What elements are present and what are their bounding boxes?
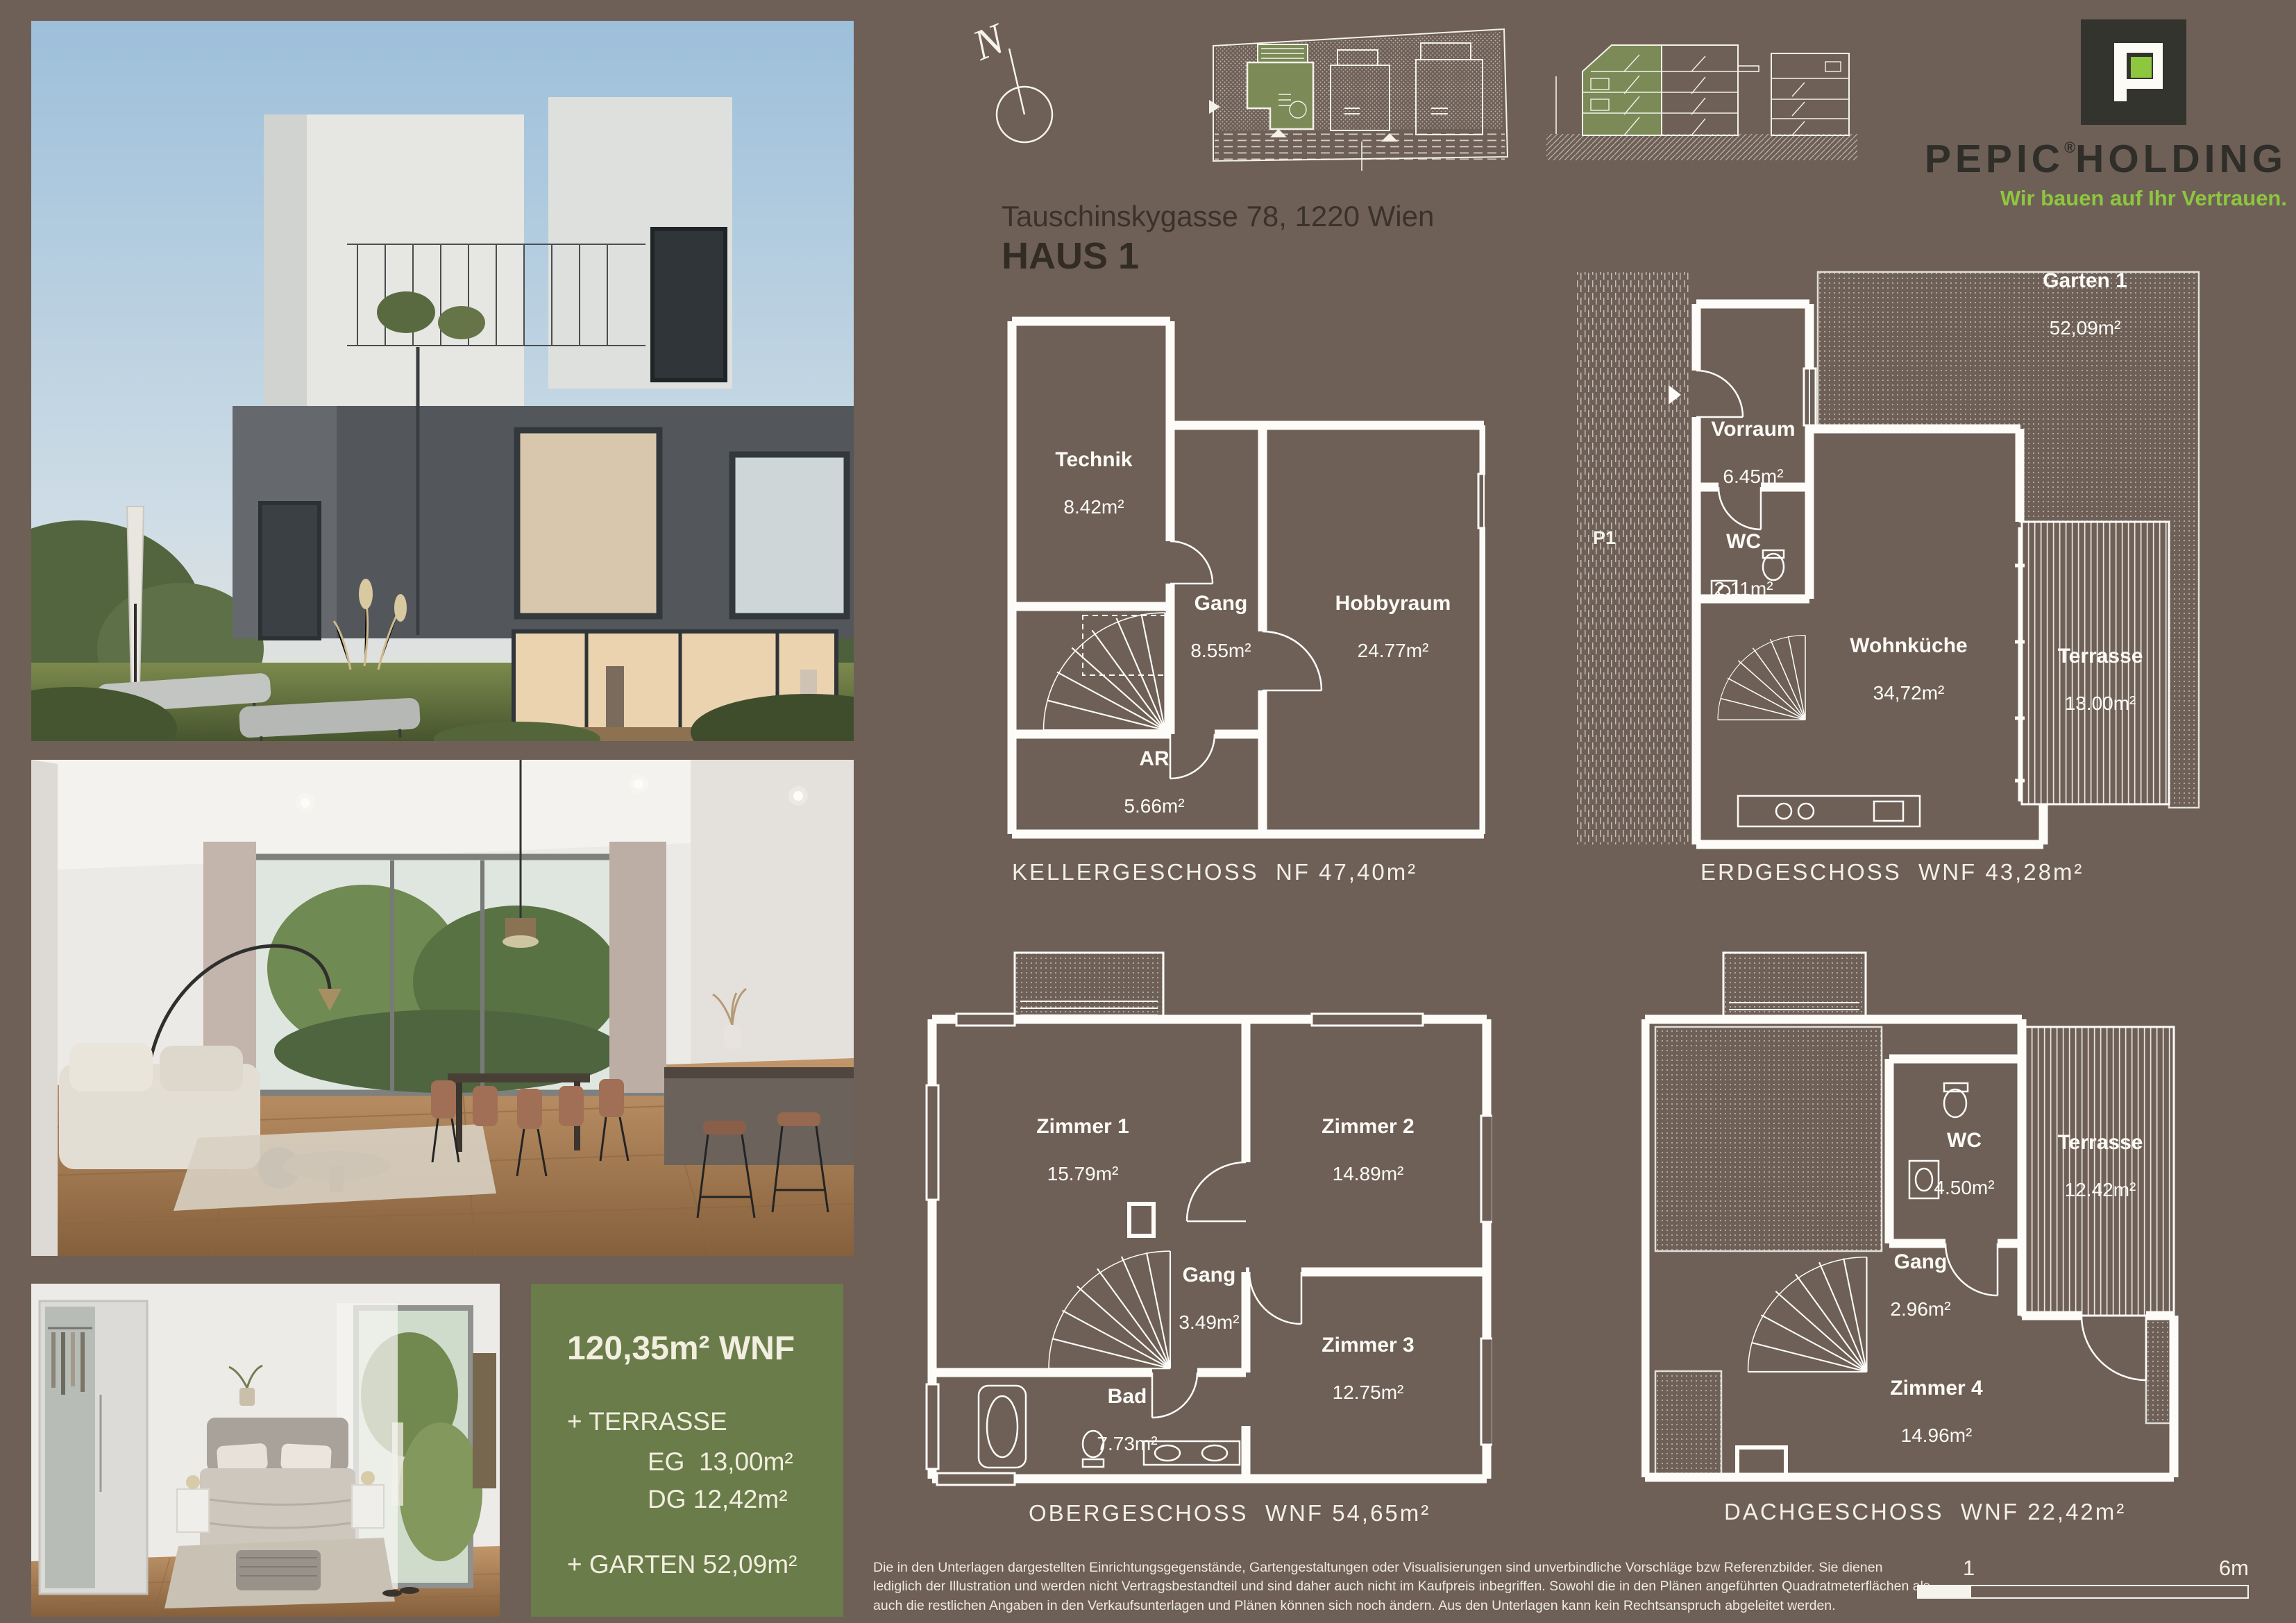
og-stair — [1049, 1251, 1170, 1368]
kg-room-ar: AR 5.66m² — [1124, 722, 1184, 829]
eg-room-terrasse: Terrasse 13.00m² — [2058, 620, 2143, 726]
og-room-bad: Bad 7.73m² — [1097, 1360, 1157, 1467]
og-shaft — [1129, 1204, 1154, 1236]
plan-erdgeschoss — [1576, 267, 2256, 857]
project-address: Tauschinskygasse 78, 1220 Wien — [1002, 200, 1434, 233]
logo-registered-mark: ® — [2064, 139, 2075, 156]
eg-room-garten: Garten 1 52,09m² — [2043, 244, 2127, 351]
og-room-zimmer1: Zimmer 1 15.79m² — [1036, 1090, 1129, 1197]
eg-room-wc: WC 2.11m² — [1714, 505, 1773, 612]
kg-caption: KELLERGESCHOSS NF 47,40m² — [1012, 859, 1417, 885]
logo-icon — [2081, 19, 2186, 125]
middle-section — [1662, 45, 1759, 135]
kg-room-technik: Technik 8.42m² — [1055, 423, 1132, 530]
north-compass: N — [970, 21, 1081, 149]
kg-room-hobbyraum: Hobbyraum 24.77m² — [1335, 567, 1451, 674]
og-dormer — [1015, 953, 1163, 1019]
kg-stair — [1044, 613, 1165, 730]
curtain-right — [609, 842, 666, 1093]
bed — [200, 1418, 355, 1550]
kg-room-gang: Gang 8.55m² — [1190, 567, 1251, 674]
exterior-render-photo — [31, 21, 854, 741]
eg-kitchen-counter — [1738, 796, 1920, 826]
terrasse-eg-line: EG 13,00m² — [648, 1447, 793, 1477]
dg-stair — [1748, 1257, 1867, 1372]
dg-room-zimmer4: Zimmer 4 14.96m² — [1890, 1352, 1982, 1459]
page-title-haus: HAUS 1 — [1002, 235, 1139, 278]
dg-roof-corner — [1655, 1371, 1721, 1477]
compass-needle — [1009, 49, 1024, 114]
dg-roof-area — [1655, 1027, 1882, 1251]
bench — [236, 1550, 321, 1590]
dg-caption: DACHGESCHOSS WNF 22,42m² — [1724, 1499, 2126, 1525]
dg-room-gang: Gang 2.96m² — [1890, 1225, 1950, 1332]
area-summary-box: 120,35m² WNF + TERRASSE EG 13,00m² DG 12… — [531, 1284, 843, 1617]
scale-bar-track — [1917, 1585, 2249, 1599]
eg-room-vorraum: Vorraum 6.45m² — [1711, 393, 1795, 500]
bedroom-photo — [31, 1284, 500, 1617]
og-room-zimmer2: Zimmer 2 14.89m² — [1322, 1090, 1414, 1197]
kg-stair-landing — [1083, 615, 1166, 675]
green-section — [1582, 45, 1662, 135]
logo-brand: PEPIC — [1925, 137, 2064, 181]
og-caption: OBERGESCHOSS WNF 54,65m² — [1029, 1500, 1430, 1527]
eg-caption: ERDGESCHOSS WNF 43,28m² — [1700, 859, 2084, 885]
kg-window-right — [1478, 474, 1485, 528]
logo-wordmark: PEPIC®HOLDING — [1925, 136, 2287, 182]
site-plan-thumbnail — [1209, 25, 1511, 172]
eg-stair — [1718, 636, 1805, 720]
terrasse-line: + TERRASSE — [567, 1407, 727, 1436]
eg-window-vorraum — [1804, 368, 1816, 425]
logo-tagline: Wir bauen auf Ihr Vertrauen. — [2000, 186, 2287, 211]
scale-tick-6m: 6m — [2219, 1556, 2249, 1581]
scale-tick-1: 1 — [1963, 1556, 1975, 1581]
wall-art — [473, 1353, 496, 1488]
logo-brand2: HOLDING — [2075, 137, 2287, 181]
logo-green-square — [2131, 57, 2152, 78]
og-room-zimmer3: Zimmer 3 12.75m² — [1322, 1309, 1414, 1416]
eg-parking-label: P1 — [1593, 527, 1616, 549]
eg-room-wohnkueche: Wohnküche 34,72m² — [1850, 609, 1967, 716]
terrasse-dg-line: DG 12,42m² — [648, 1485, 788, 1514]
living-room-photo — [31, 760, 854, 1256]
right-section — [1771, 53, 1849, 135]
legal-disclaimer: Die in den Unterlagen dargestellten Einr… — [873, 1558, 1935, 1615]
garten-line: + GARTEN 52,09m² — [567, 1550, 797, 1579]
wardrobe — [40, 1301, 147, 1594]
section-elevation-thumbnail — [1542, 38, 1862, 170]
og-room-gang: Gang 3.49m² — [1179, 1239, 1239, 1345]
foreground-wall-edge — [31, 760, 58, 1256]
eg-driveway-hatch — [1576, 272, 1689, 844]
dg-room-wc: WC 4.50m² — [1934, 1104, 1994, 1211]
scale-bar: 1 6m — [1917, 1556, 2249, 1599]
garden-doors — [239, 857, 663, 1093]
scale-bar-filled-segment — [1918, 1586, 1971, 1597]
brochure-page: { "page": { "background": "#6e6057", "ac… — [0, 0, 2296, 1623]
dg-room-terrasse: Terrasse 12.42m² — [2058, 1106, 2143, 1213]
wnf-total: 120,35m² WNF — [567, 1329, 795, 1368]
